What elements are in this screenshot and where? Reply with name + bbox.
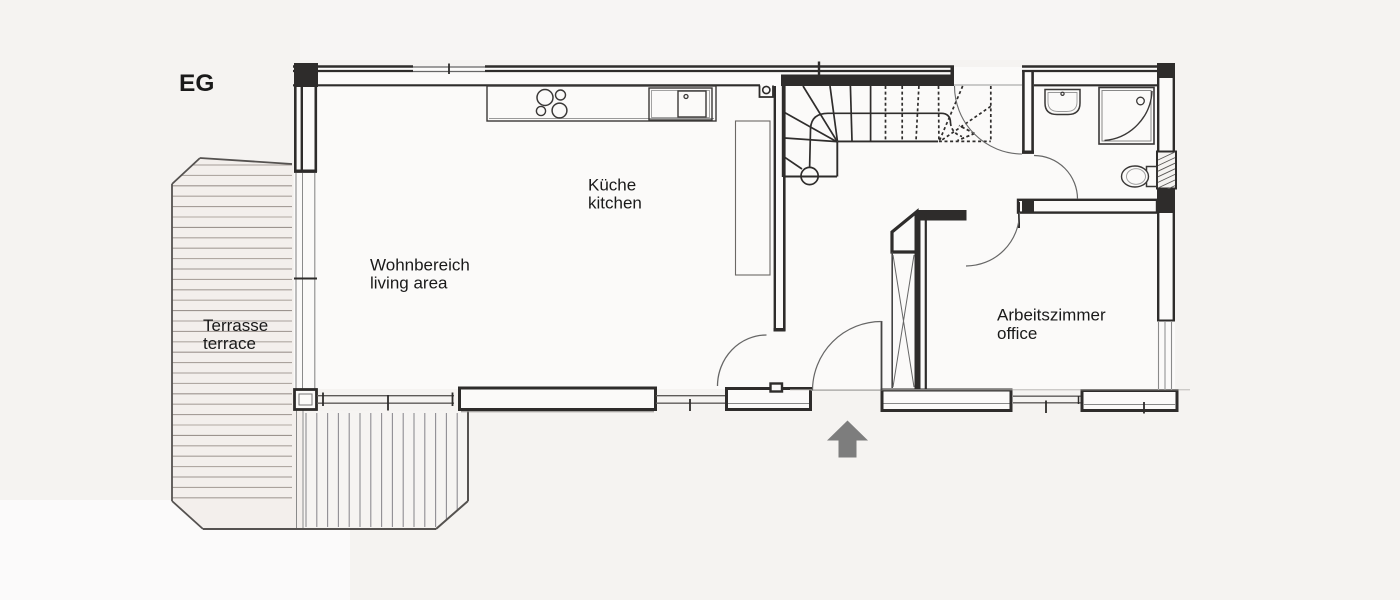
svg-text:terrace: terrace [203,334,256,353]
svg-text:Küche: Küche [588,176,636,195]
svg-text:kitchen: kitchen [588,194,642,213]
svg-text:Wohnbereich: Wohnbereich [370,256,470,275]
svg-text:Arbeitszimmer: Arbeitszimmer [997,306,1106,325]
svg-text:office: office [997,324,1037,343]
svg-text:EG: EG [179,70,214,97]
svg-text:living area: living area [370,274,448,293]
svg-text:Terrasse: Terrasse [203,316,268,335]
